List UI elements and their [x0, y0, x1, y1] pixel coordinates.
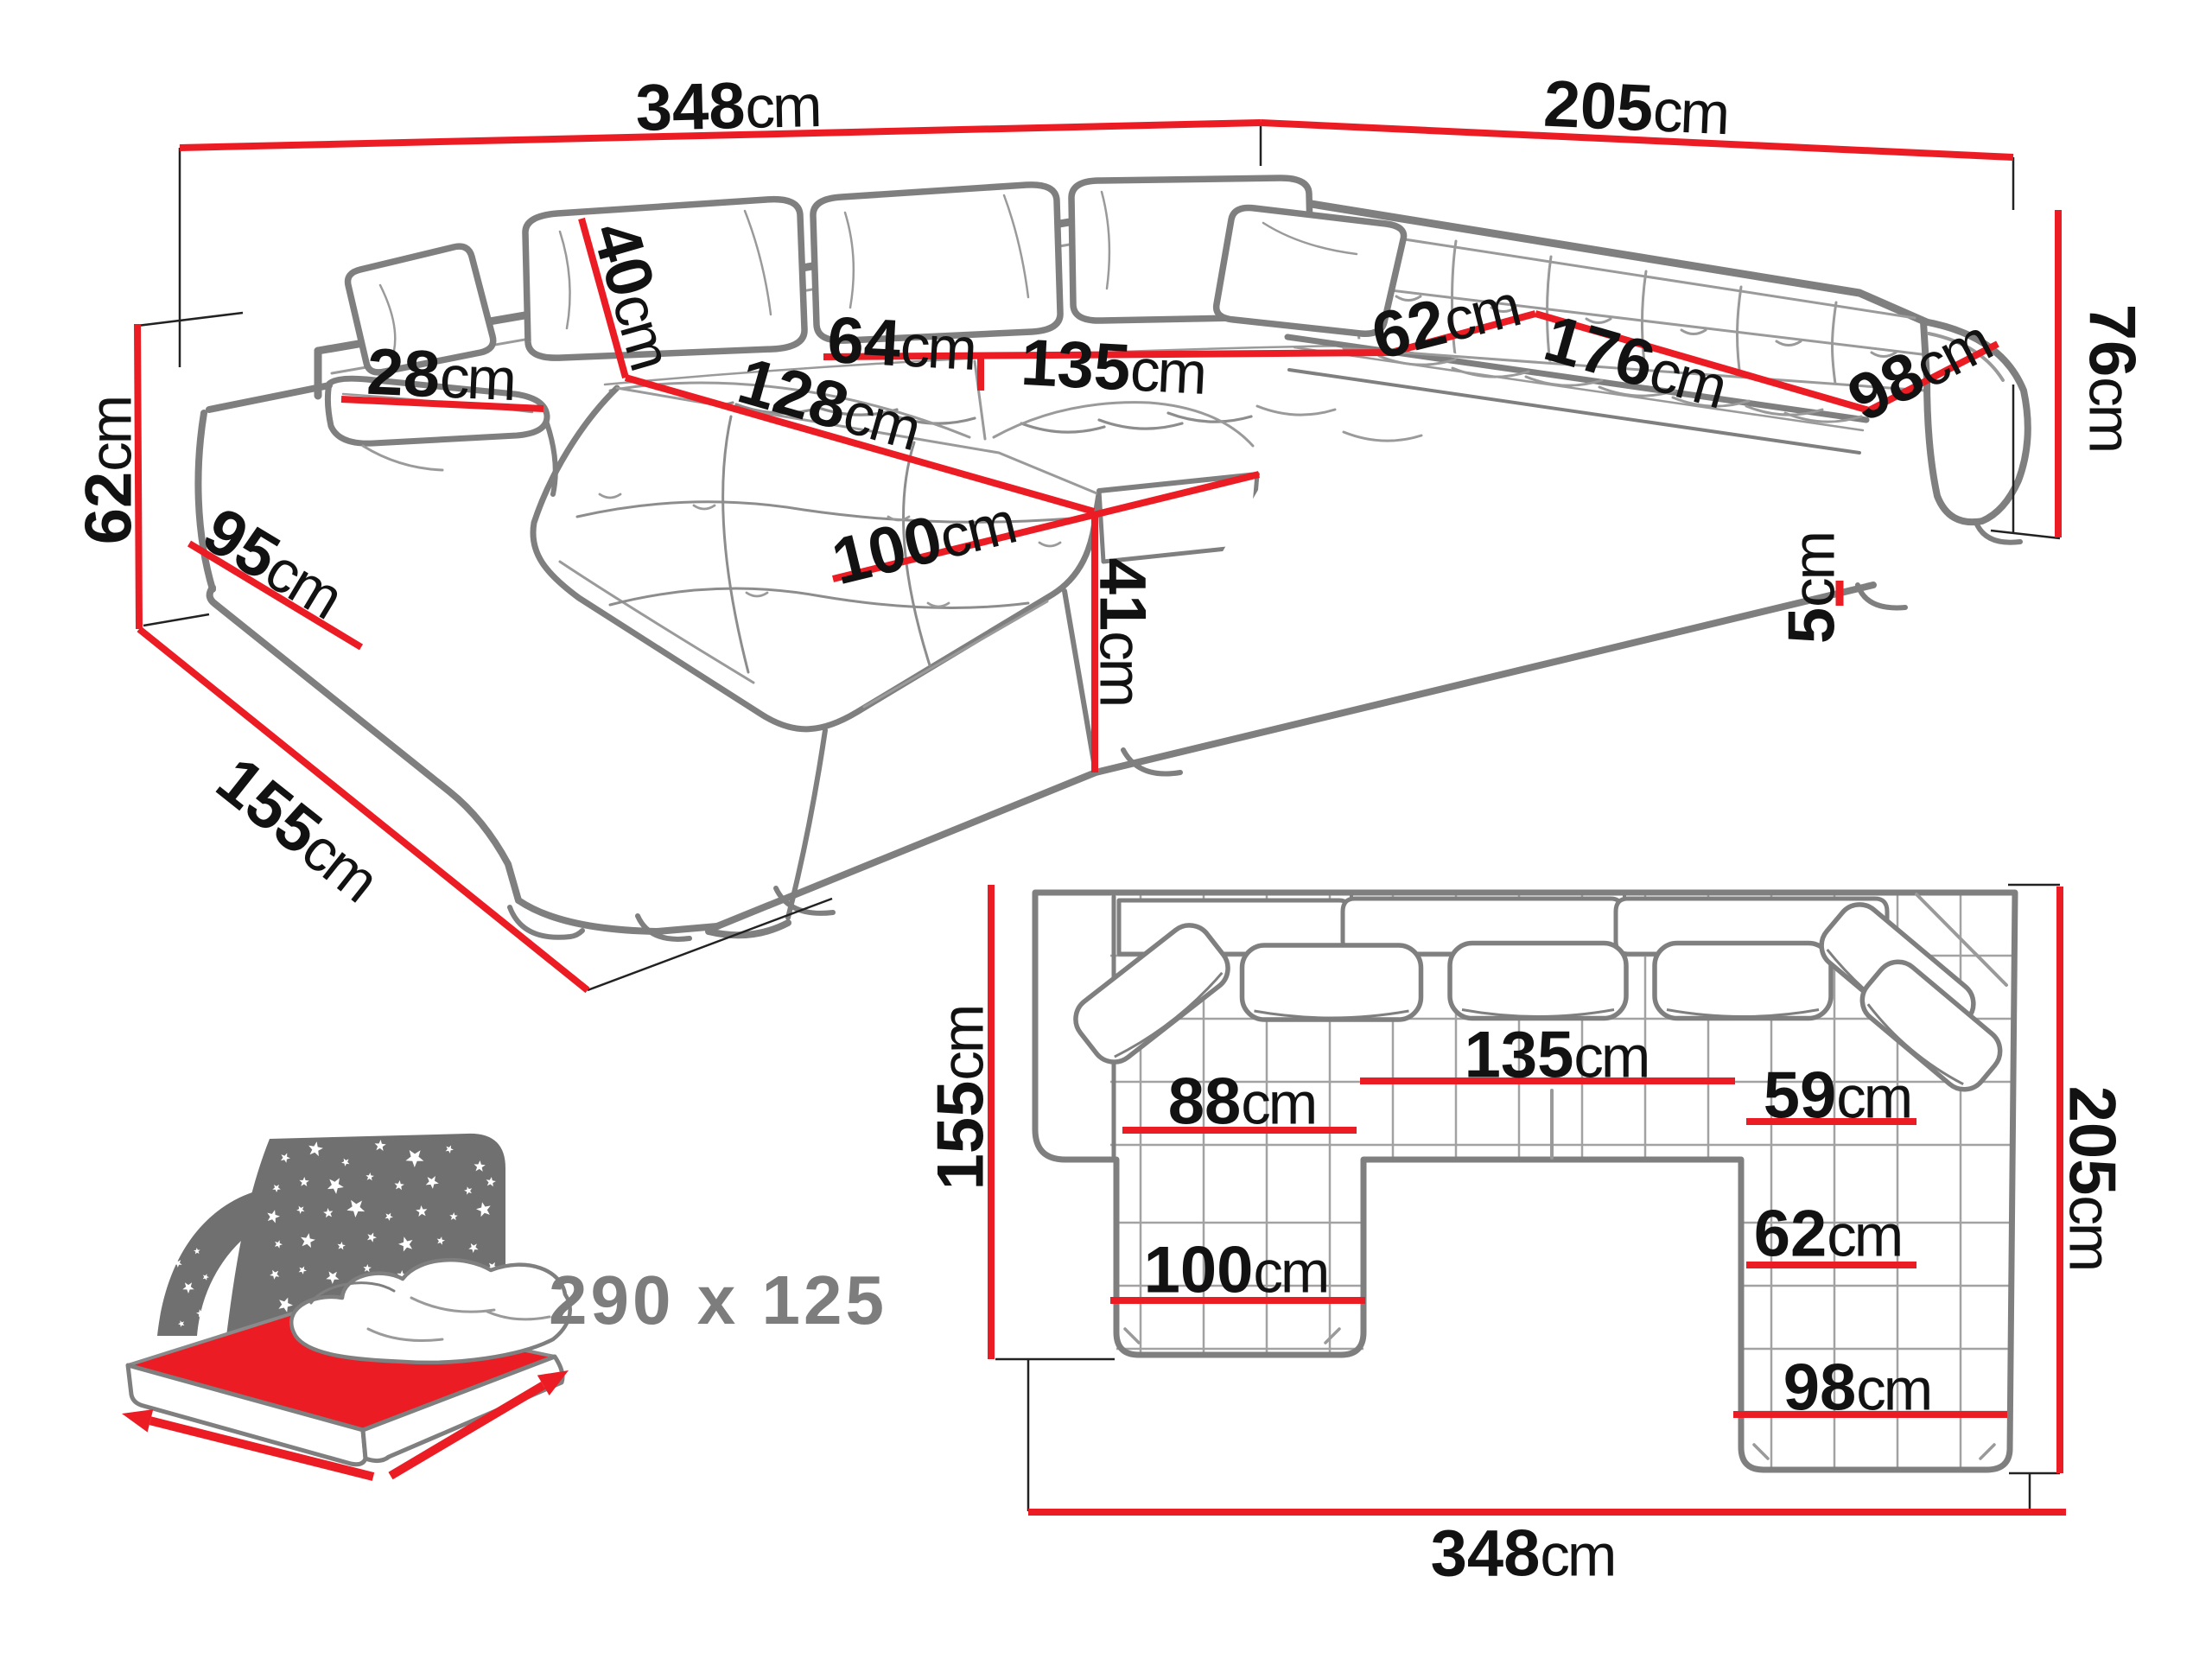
svg-text:62cm: 62cm [72, 397, 145, 545]
svg-text:100cm: 100cm [1144, 1233, 1328, 1306]
svg-text:5cm: 5cm [1775, 533, 1848, 644]
svg-text:290 x 125: 290 x 125 [549, 1262, 887, 1338]
svg-text:41cm: 41cm [1086, 558, 1160, 706]
svg-text:205cm: 205cm [1542, 67, 1729, 149]
svg-text:98cm: 98cm [1783, 1351, 1931, 1424]
svg-text:155cm: 155cm [924, 1007, 997, 1191]
svg-text:76cm: 76cm [2075, 304, 2149, 452]
svg-text:348cm: 348cm [1431, 1516, 1615, 1590]
svg-text:59cm: 59cm [1764, 1058, 1911, 1132]
svg-text:205cm: 205cm [2056, 1086, 2129, 1270]
svg-text:88cm: 88cm [1168, 1065, 1316, 1138]
svg-text:135cm: 135cm [1465, 1018, 1649, 1091]
svg-text:28cm: 28cm [365, 335, 516, 415]
svg-text:62cm: 62cm [1754, 1197, 1902, 1270]
svg-text:348cm: 348cm [635, 67, 821, 145]
